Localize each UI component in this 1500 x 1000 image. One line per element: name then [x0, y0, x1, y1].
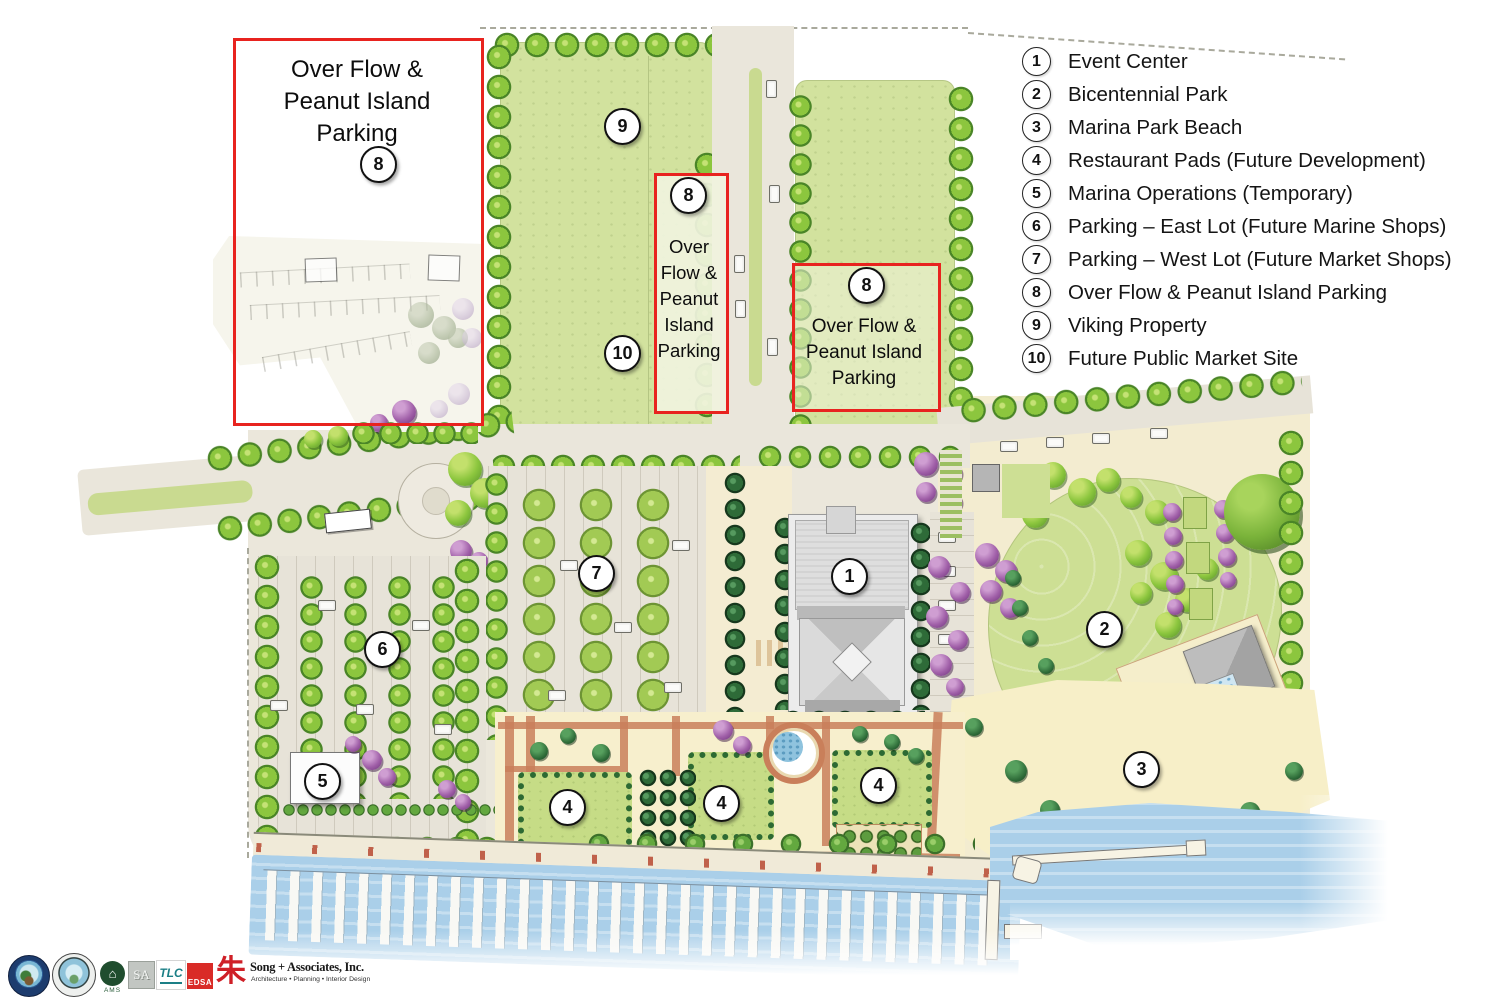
fountain-pool	[773, 732, 803, 762]
tree-row	[634, 486, 670, 734]
tree-row	[482, 470, 510, 740]
tree-row	[386, 574, 412, 799]
tlc-logo-icon: TLC	[156, 960, 186, 990]
map-marker-2: 2	[1086, 611, 1123, 648]
overflow-label-line: Over Flow &	[796, 314, 932, 340]
purple-tree	[1167, 599, 1183, 615]
purple-tree	[362, 750, 382, 770]
palm-tree	[1012, 600, 1028, 616]
ams-logo-icon: ⌂	[100, 961, 125, 986]
event-center-roof-wing	[826, 506, 856, 534]
palm-tree	[1038, 658, 1054, 674]
car	[664, 682, 682, 693]
purple-tree	[946, 678, 964, 696]
purple-tree	[1163, 503, 1181, 521]
map-marker-8-east: 8	[848, 267, 885, 304]
overflow-label-line: Island	[652, 312, 726, 338]
legend-item-future-public-market: 10 Future Public Market Site	[1022, 342, 1452, 375]
map-marker-4-west: 4	[549, 789, 586, 826]
car	[672, 540, 690, 551]
purple-tree	[950, 582, 970, 602]
tree-row	[577, 486, 613, 734]
tree	[1068, 478, 1096, 506]
map-marker-5: 5	[304, 763, 341, 800]
map-marker-8-nw: 8	[360, 146, 397, 183]
legend-number-badge: 6	[1022, 212, 1051, 241]
palm-tree	[965, 718, 983, 736]
purple-tree	[1220, 572, 1236, 588]
pier-pad	[1186, 839, 1207, 856]
palm-tree	[1285, 762, 1303, 780]
hedge-block	[1186, 542, 1210, 574]
overflow-label-line: Over Flow &	[242, 54, 472, 86]
overflow-label-east: Over Flow & Peanut Island Parking	[796, 314, 932, 392]
tree	[1096, 468, 1120, 492]
map-marker-6: 6	[364, 631, 401, 668]
car	[1046, 437, 1064, 448]
car	[1150, 428, 1168, 439]
ams-logo-label: AMS	[100, 987, 125, 994]
sa-logo-icon: SA	[128, 961, 155, 989]
legend-number-badge: 2	[1022, 80, 1051, 109]
purple-tree	[1166, 575, 1184, 593]
shed	[972, 464, 1000, 492]
overflow-label-line: Parking	[242, 118, 472, 150]
legend-number-badge: 10	[1022, 344, 1051, 373]
purple-tree	[914, 452, 938, 476]
palm-tree	[530, 742, 548, 760]
tlc-logo-bar	[160, 982, 182, 985]
palm-tree	[592, 744, 610, 762]
road-median	[749, 68, 762, 386]
palm-tree	[1005, 570, 1021, 586]
tree-row	[946, 84, 976, 440]
palm-tree	[1005, 760, 1027, 782]
edsa-logo-icon: EDSA	[187, 963, 213, 989]
legend-item-bicentennial-park: 2 Bicentennial Park	[1022, 78, 1452, 111]
palm-tree	[1022, 630, 1038, 646]
car	[434, 724, 452, 735]
purple-tree	[926, 606, 948, 628]
car	[318, 600, 336, 611]
legend-item-marina-operations: 5 Marina Operations (Temporary)	[1022, 177, 1452, 210]
purple-tree	[1165, 551, 1183, 569]
legend-number-badge: 1	[1022, 47, 1051, 76]
car	[356, 704, 374, 715]
overflow-label-line: Peanut	[652, 286, 726, 312]
legend-number-badge: 3	[1022, 113, 1051, 142]
legend-item-restaurant-pads: 4 Restaurant Pads (Future Development)	[1022, 144, 1452, 177]
plaza-path	[505, 716, 514, 856]
map-marker-9: 9	[604, 108, 641, 145]
purple-tree	[345, 736, 361, 752]
car	[734, 255, 745, 273]
purple-tree	[713, 720, 733, 740]
purple-tree	[975, 543, 999, 567]
tree	[1130, 582, 1152, 604]
footer-logos: ⌂ AMS SA TLC EDSA 朱 Song + Associates, I…	[8, 938, 468, 998]
overflow-label-line: Parking	[796, 366, 932, 392]
lawn-patch	[1002, 464, 1050, 518]
field-divider	[648, 56, 649, 424]
overflow-label-line: Over	[652, 234, 726, 260]
song-associates-name: Song + Associates, Inc.	[250, 960, 364, 975]
car	[735, 300, 746, 318]
song-associates-tagline: Architecture • Planning • Interior Desig…	[251, 976, 370, 983]
legend-label: Over Flow & Peanut Island Parking	[1068, 281, 1387, 305]
map-marker-7: 7	[578, 555, 615, 592]
overflow-label-mid: Over Flow & Peanut Island Parking	[652, 234, 726, 364]
legend-label: Restaurant Pads (Future Development)	[1068, 149, 1426, 173]
palm-row	[722, 470, 746, 735]
legend-item-viking-property: 9 Viking Property	[1022, 309, 1452, 342]
purple-tree	[1218, 548, 1236, 566]
tree-row	[484, 42, 514, 440]
legend-label: Marina Park Beach	[1068, 116, 1242, 140]
legend-number-badge: 8	[1022, 278, 1051, 307]
car	[1092, 433, 1110, 444]
tree-row	[492, 30, 720, 60]
overflow-label-nw: Over Flow & Peanut Island Parking	[242, 54, 472, 150]
palm-tree	[852, 726, 868, 742]
legend-label: Parking – West Lot (Future Market Shops)	[1068, 248, 1452, 272]
site-plan-canvas: Over Flow & Peanut Island Parking Over F…	[0, 0, 1500, 1000]
legend-label: Bicentennial Park	[1068, 83, 1228, 107]
legend-label: Viking Property	[1068, 314, 1207, 338]
overflow-label-line: Parking	[652, 338, 726, 364]
hedge-block	[1183, 497, 1207, 529]
tree-row	[430, 574, 456, 799]
car	[767, 338, 778, 356]
car	[769, 185, 780, 203]
purple-tree	[980, 580, 1002, 602]
map-marker-4-center: 4	[703, 785, 740, 822]
water-fade-right	[1300, 795, 1410, 955]
song-glyph-icon: 朱	[216, 955, 246, 989]
legend-number-badge: 4	[1022, 146, 1051, 175]
legend-label: Parking – East Lot (Future Marine Shops)	[1068, 215, 1446, 239]
car	[560, 560, 578, 571]
tree	[1125, 540, 1151, 566]
palm-tree	[908, 748, 924, 764]
legend-label: Marina Operations (Temporary)	[1068, 182, 1353, 206]
legend-item-marina-park-beach: 3 Marina Park Beach	[1022, 111, 1452, 144]
car	[412, 620, 430, 631]
plaza-path	[822, 716, 830, 846]
palm-tree	[560, 728, 576, 744]
legend-label: Future Public Market Site	[1068, 347, 1298, 371]
tree	[1155, 612, 1181, 638]
legend: 1 Event Center 2 Bicentennial Park 3 Mar…	[1022, 45, 1452, 375]
legend-number-badge: 9	[1022, 311, 1051, 340]
tree	[445, 500, 471, 526]
purple-tree	[948, 630, 968, 650]
sa-logo-label: SA	[133, 967, 150, 983]
hatch-garden	[940, 450, 962, 538]
purple-tree	[378, 768, 396, 786]
purple-tree	[928, 556, 950, 578]
purple-tree	[438, 780, 456, 798]
car	[270, 700, 288, 711]
map-marker-3: 3	[1123, 751, 1160, 788]
map-marker-4-east: 4	[860, 767, 897, 804]
hedge-block	[1189, 588, 1213, 620]
tlc-logo-label: TLC	[159, 966, 182, 980]
purple-tree	[916, 482, 936, 502]
car	[1000, 441, 1018, 452]
car	[548, 690, 566, 701]
map-marker-10: 10	[604, 335, 641, 372]
city-seal-icon	[8, 955, 50, 997]
car	[614, 622, 632, 633]
tree	[304, 430, 322, 448]
legend-item-parking-east-lot: 6 Parking – East Lot (Future Marine Shop…	[1022, 210, 1452, 243]
palm-tree	[884, 734, 900, 750]
legend-label: Event Center	[1068, 50, 1188, 74]
purple-tree	[733, 736, 751, 754]
map-marker-1: 1	[831, 558, 868, 595]
property-line	[247, 548, 249, 858]
tree	[1120, 486, 1142, 508]
city-seal-icon	[52, 953, 96, 997]
edsa-logo-label: EDSA	[188, 978, 212, 987]
overflow-label-line: Flow &	[652, 260, 726, 286]
legend-item-event-center: 1 Event Center	[1022, 45, 1452, 78]
legend-number-badge: 7	[1022, 245, 1051, 274]
overflow-label-line: Peanut Island	[242, 86, 472, 118]
legend-number-badge: 5	[1022, 179, 1051, 208]
map-marker-8-mid: 8	[670, 177, 707, 214]
purple-tree	[455, 794, 471, 810]
tree	[328, 426, 348, 446]
purple-tree	[930, 654, 952, 676]
legend-item-overflow-parking: 8 Over Flow & Peanut Island Parking	[1022, 276, 1452, 309]
overflow-label-line: Peanut Island	[796, 340, 932, 366]
purple-tree	[1164, 527, 1182, 545]
car	[766, 80, 777, 98]
legend-item-parking-west-lot: 7 Parking – West Lot (Future Market Shop…	[1022, 243, 1452, 276]
